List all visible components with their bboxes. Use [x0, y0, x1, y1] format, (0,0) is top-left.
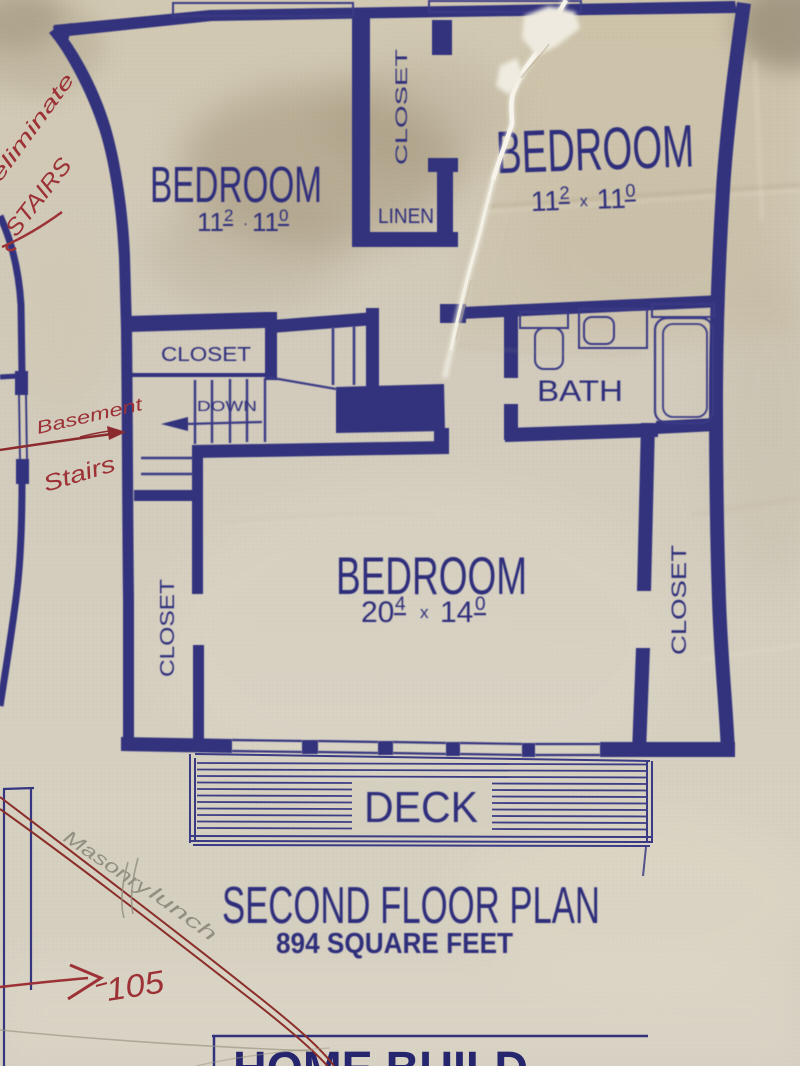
svg-text:CLOSET: CLOSET	[161, 344, 251, 366]
svg-text:11: 11	[530, 185, 560, 217]
svg-text:·: ·	[243, 215, 248, 232]
svg-text:BEDROOM: BEDROOM	[495, 112, 695, 186]
svg-text:11: 11	[596, 183, 626, 215]
svg-text:11: 11	[252, 207, 279, 237]
svg-text:11: 11	[197, 207, 224, 237]
svg-text:CLOSET: CLOSET	[157, 579, 179, 677]
svg-text:CLOSET: CLOSET	[392, 49, 411, 165]
svg-text:x: x	[580, 193, 589, 210]
svg-text:0: 0	[625, 180, 636, 200]
svg-text:20: 20	[361, 596, 394, 629]
svg-text:HOME BUILD: HOME BUILD	[233, 1043, 528, 1066]
svg-text:14: 14	[440, 596, 473, 629]
svg-text:0: 0	[475, 594, 486, 615]
svg-text:DECK: DECK	[364, 783, 478, 832]
svg-text:2: 2	[224, 206, 233, 225]
svg-text:BEDROOM: BEDROOM	[150, 156, 322, 213]
svg-text:4: 4	[395, 594, 406, 615]
svg-text:LINEN: LINEN	[378, 205, 434, 228]
svg-text:SECOND FLOOR PLAN: SECOND FLOOR PLAN	[222, 877, 600, 935]
svg-text:894 SQUARE FEET: 894 SQUARE FEET	[276, 928, 513, 960]
svg-text:CLOSET: CLOSET	[668, 545, 691, 655]
svg-text:BATH: BATH	[537, 375, 623, 408]
svg-text:0: 0	[279, 206, 288, 225]
svg-text:DOWN: DOWN	[197, 398, 257, 415]
svg-text:2: 2	[559, 183, 570, 203]
svg-text:x: x	[420, 603, 429, 622]
